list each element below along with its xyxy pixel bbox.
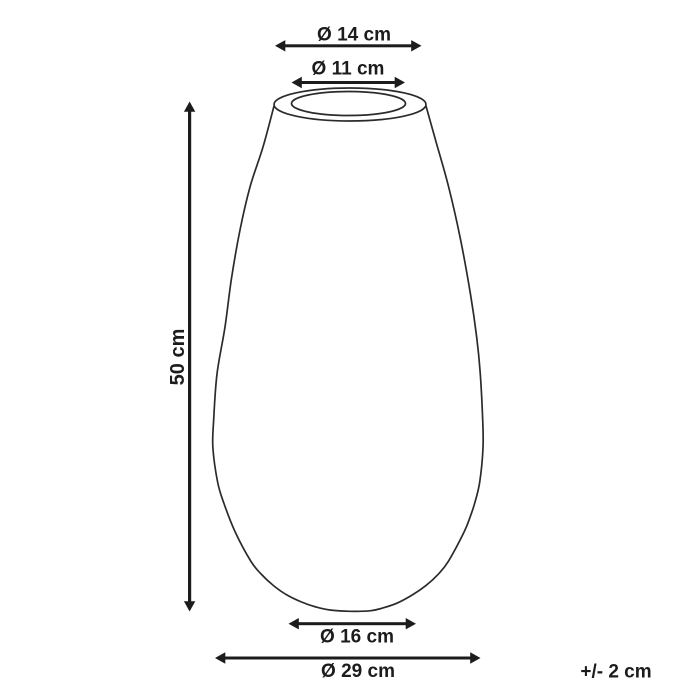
svg-text:Ø 14 cm: Ø 14 cm bbox=[317, 25, 391, 46]
svg-text:50 cm: 50 cm bbox=[167, 329, 189, 386]
svg-text:+/- 2 cm: +/- 2 cm bbox=[580, 662, 651, 683]
svg-text:Ø 11 cm: Ø 11 cm bbox=[312, 59, 385, 80]
svg-text:Ø 29 cm: Ø 29 cm bbox=[321, 661, 395, 682]
svg-text:Ø 16 cm: Ø 16 cm bbox=[320, 627, 394, 648]
